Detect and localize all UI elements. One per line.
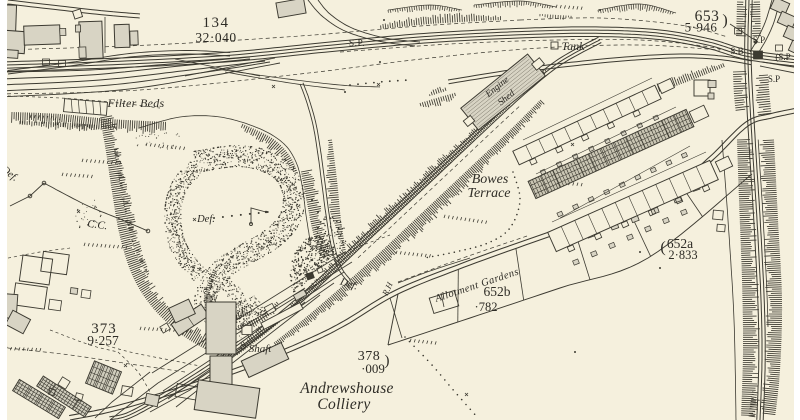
svg-text:Terrace: Terrace [467,186,510,201]
svg-text:Def.: Def. [196,214,215,225]
svg-text:·782: ·782 [475,300,498,314]
svg-text:Shaft: Shaft [249,343,273,355]
svg-text:): ) [722,12,727,29]
svg-text:S.P: S.P [753,35,765,45]
svg-text:Tank: Tank [562,39,586,53]
svg-text:S.B: S.B [730,46,743,56]
svg-text:Colliery: Colliery [317,396,370,413]
svg-text:(: ( [660,239,665,256]
svg-text:Bowes: Bowes [472,172,509,187]
svg-text:2·833: 2·833 [668,248,697,262]
svg-text:5·946: 5·946 [685,20,718,35]
svg-text:652b: 652b [484,284,511,299]
svg-text:Filter Beds: Filter Beds [107,96,165,110]
svg-text:): ) [385,353,390,369]
svg-text:Andrewshouse: Andrewshouse [299,380,393,397]
svg-text:S.P.: S.P. [349,39,365,49]
svg-text:9·257: 9·257 [87,333,119,348]
svg-text:S.P: S.P [768,74,780,84]
svg-text:134: 134 [203,15,230,31]
svg-text:32·040: 32·040 [195,30,236,45]
svg-text:·009: ·009 [361,361,385,376]
svg-text:(S.P: (S.P [775,52,790,62]
